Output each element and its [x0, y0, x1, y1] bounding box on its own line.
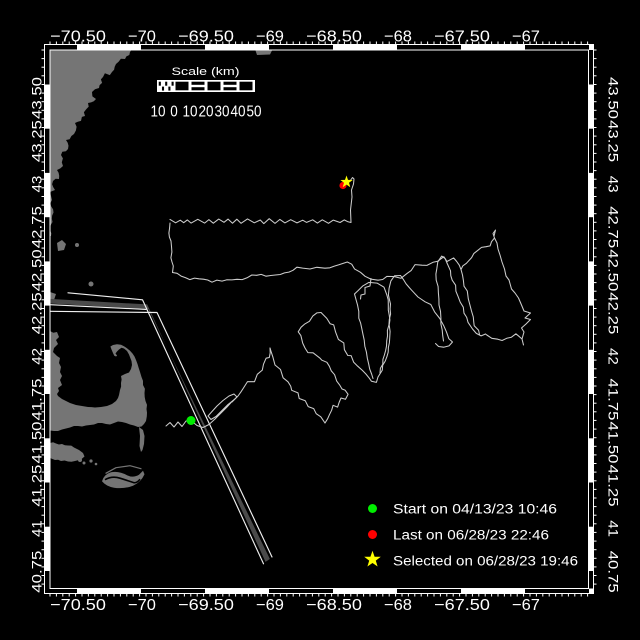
svg-text:41.50: 41.50 [29, 421, 45, 463]
svg-text:41.25: 41.25 [29, 464, 45, 506]
svg-text:−70.50: −70.50 [50, 29, 106, 46]
svg-text:−69.50: −69.50 [178, 597, 234, 614]
svg-text:Start on 04/13/23 10:46: Start on 04/13/23 10:46 [393, 502, 557, 517]
svg-text:43.25: 43.25 [606, 120, 622, 162]
svg-text:0: 0 [170, 104, 178, 121]
svg-text:Last on 06/28/23 22:46: Last on 06/28/23 22:46 [393, 528, 549, 543]
svg-text:43: 43 [29, 175, 45, 192]
svg-text:40.75: 40.75 [29, 550, 45, 592]
svg-text:42.50: 42.50 [606, 249, 622, 291]
svg-text:43: 43 [606, 176, 622, 193]
svg-text:41.75: 41.75 [606, 379, 622, 421]
svg-text:42.25: 42.25 [606, 292, 622, 334]
svg-text:−68: −68 [384, 597, 412, 614]
svg-text:42: 42 [29, 348, 45, 365]
svg-text:40.75: 40.75 [606, 551, 622, 593]
svg-text:43.25: 43.25 [29, 120, 45, 162]
svg-text:20: 20 [199, 104, 214, 121]
svg-text:−67: −67 [512, 597, 540, 614]
svg-text:−68: −68 [384, 29, 412, 46]
svg-text:10: 10 [151, 104, 166, 121]
svg-text:−69: −69 [256, 29, 284, 46]
svg-text:−68.50: −68.50 [306, 29, 362, 46]
svg-text:Scale (km): Scale (km) [172, 66, 240, 78]
svg-text:−70: −70 [128, 597, 156, 614]
svg-text:42.25: 42.25 [29, 292, 45, 334]
svg-text:41: 41 [29, 520, 45, 537]
svg-text:−70: −70 [128, 29, 156, 46]
svg-text:41.25: 41.25 [606, 465, 622, 507]
svg-text:30: 30 [215, 104, 230, 121]
svg-text:−67.50: −67.50 [434, 597, 490, 614]
svg-text:−67.50: −67.50 [434, 29, 490, 46]
svg-text:43.50: 43.50 [29, 77, 45, 119]
svg-text:42: 42 [606, 348, 622, 365]
svg-text:50: 50 [247, 104, 262, 121]
svg-text:43.50: 43.50 [606, 77, 622, 119]
svg-text:41: 41 [606, 520, 622, 537]
svg-text:−67: −67 [512, 29, 540, 46]
svg-text:42.75: 42.75 [606, 206, 622, 248]
svg-text:10: 10 [183, 104, 198, 121]
svg-text:42.75: 42.75 [29, 206, 45, 248]
svg-text:−70.50: −70.50 [50, 597, 106, 614]
svg-text:Selected on 06/28/23 19:46: Selected on 06/28/23 19:46 [393, 554, 578, 569]
svg-text:−69.50: −69.50 [178, 29, 234, 46]
svg-text:−69: −69 [256, 597, 284, 614]
svg-text:41.75: 41.75 [29, 378, 45, 420]
svg-text:42.50: 42.50 [29, 249, 45, 291]
svg-text:41.50: 41.50 [606, 422, 622, 464]
svg-text:−68.50: −68.50 [306, 597, 362, 614]
svg-text:40: 40 [231, 104, 246, 121]
